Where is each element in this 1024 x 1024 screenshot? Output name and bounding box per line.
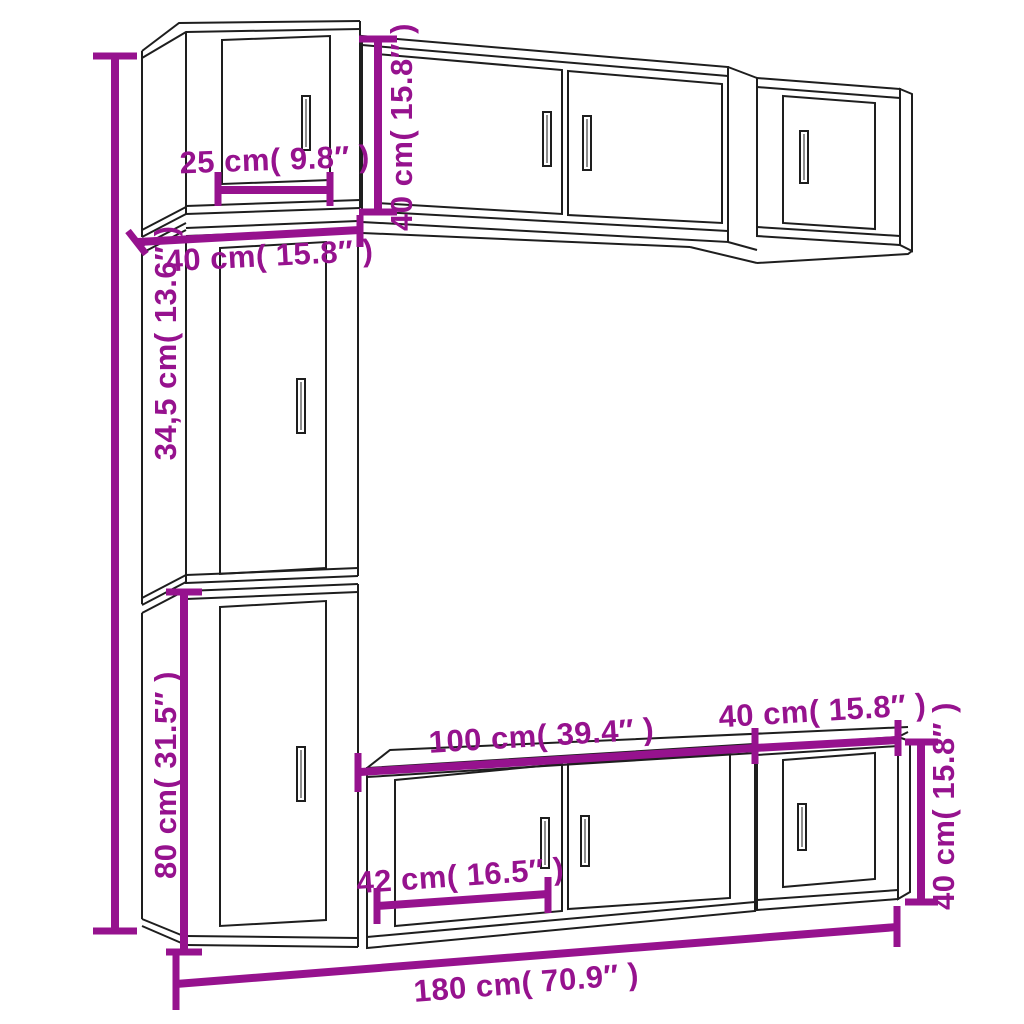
door-handle	[297, 379, 305, 433]
dim-label-bottom-row-height: 40 cm( 15.8″ )	[926, 702, 961, 910]
diagram-canvas: 40 cm( 15.8″ ) 25 cm( 9.8″ ) 40 cm( 15.8…	[0, 0, 1024, 1024]
cabinet-bottom-right	[757, 732, 910, 910]
cabinet-top-wide	[362, 36, 757, 263]
door-handle	[800, 131, 808, 183]
door-handle	[581, 816, 589, 866]
door-handle	[583, 116, 591, 170]
dim-label-middle-cabinet-height: 34,5 cm( 13.6″ )	[148, 226, 183, 461]
tv-cabinet-dimension-diagram: 40 cm( 15.8″ ) 25 cm( 9.8″ ) 40 cm( 15.8…	[0, 0, 1024, 1024]
dim-bottom-left-cabinet-height: 80 cm( 31.5″ )	[148, 594, 202, 952]
dim-bottom-wide-cabinet-width: 100 cm( 39.4″ )	[358, 711, 755, 792]
dim-top-left-cabinet-width: 25 cm( 9.8″ )	[179, 139, 370, 206]
dim-overall-height-line	[93, 56, 137, 931]
dim-label-bottom-left-cabinet-height: 80 cm( 31.5″ )	[148, 671, 183, 879]
door-handle	[798, 804, 806, 850]
dim-label-top-row-height: 40 cm( 15.8″ )	[384, 23, 419, 231]
dim-bottom-row-height: 40 cm( 15.8″ )	[905, 702, 961, 910]
door-handle	[297, 747, 305, 801]
dim-top-row-height: 40 cm( 15.8″ )	[359, 23, 419, 231]
cabinet-top-right	[728, 67, 912, 263]
dim-label-top-left-cabinet-width: 25 cm( 9.8″ )	[179, 139, 370, 181]
door-handle	[543, 112, 551, 166]
dim-middle-cabinet-height: 34,5 cm( 13.6″ )	[148, 226, 202, 592]
cabinet-bottom-wide	[367, 727, 908, 948]
